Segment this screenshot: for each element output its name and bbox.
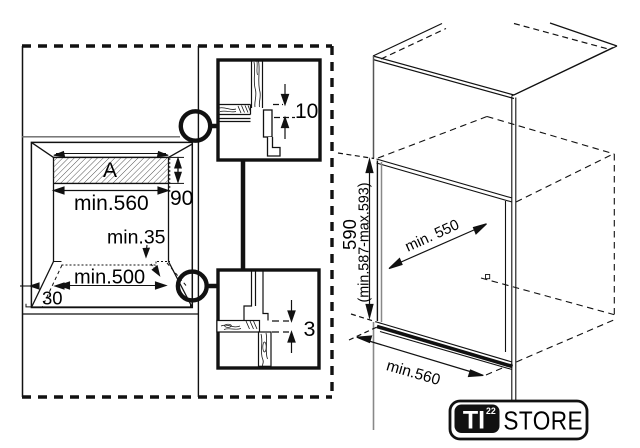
svg-text:10: 10 bbox=[295, 100, 318, 123]
svg-text:min.35: min.35 bbox=[107, 227, 166, 249]
svg-text:A: A bbox=[103, 159, 117, 182]
svg-text:30: 30 bbox=[42, 288, 63, 309]
svg-text:min.560: min.560 bbox=[74, 192, 149, 215]
svg-text:90: 90 bbox=[170, 187, 193, 210]
svg-text:(min.587-max.593): (min.587-max.593) bbox=[356, 183, 372, 303]
svg-text:TI: TI bbox=[463, 406, 485, 434]
svg-text:3: 3 bbox=[304, 317, 316, 341]
svg-text:min.500: min.500 bbox=[74, 267, 145, 289]
svg-text:STORE: STORE bbox=[503, 407, 583, 436]
svg-text:22: 22 bbox=[486, 406, 496, 416]
